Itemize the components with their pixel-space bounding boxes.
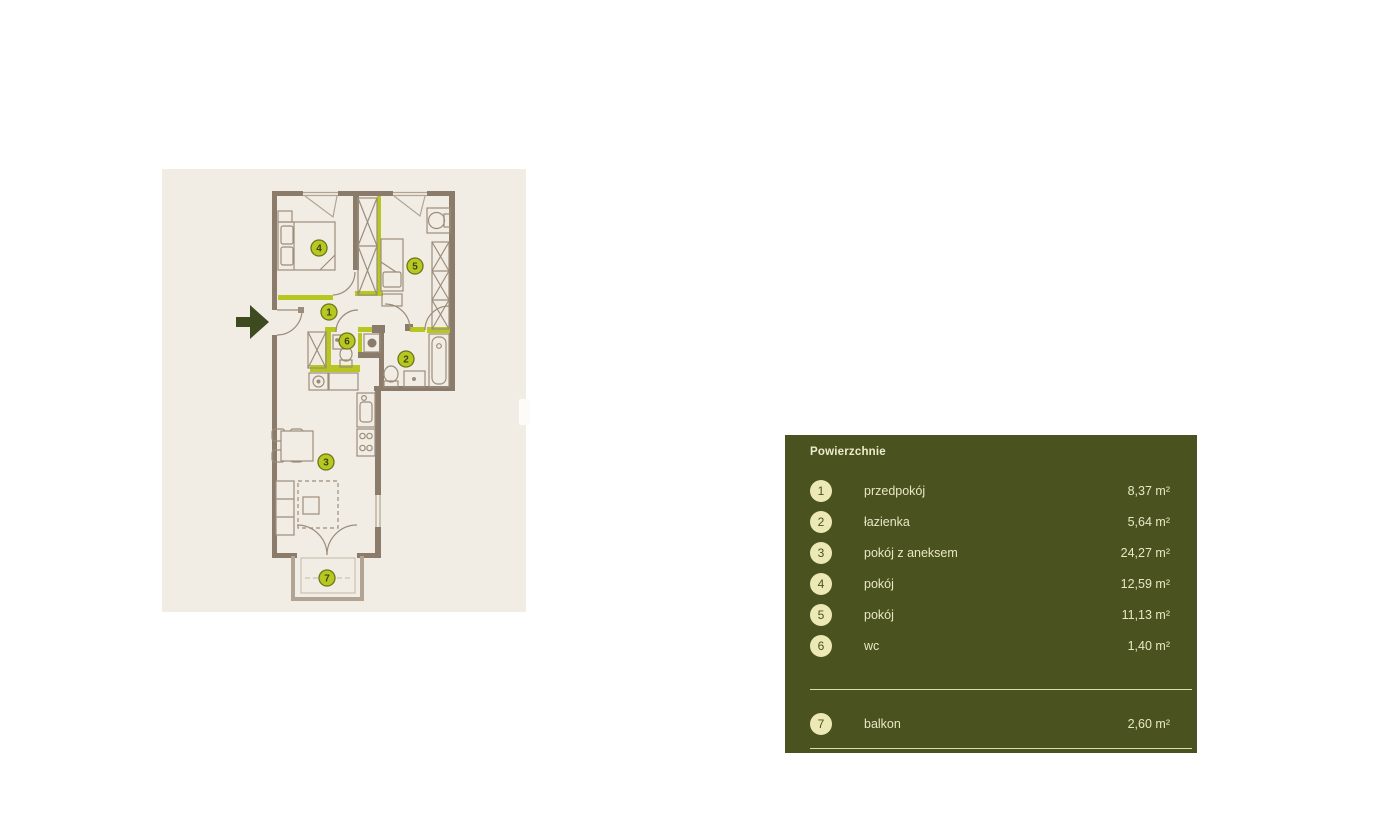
floorplan-svg: 1234567 [162,169,526,612]
room-label: pokój [864,577,894,591]
legend-row-pokoj-z-aneksem: 3 pokój z aneksem 24,27 m² [810,537,1170,568]
room-marker: 1 [321,304,337,320]
room-label: pokój z aneksem [864,546,958,560]
divider [810,748,1192,749]
room-list: 1 przedpokój 8,37 m² 2 łazienka 5,64 m² … [810,475,1170,661]
divider [810,689,1192,690]
room-label: łazienka [864,515,910,529]
room-marker: 3 [318,454,334,470]
legend-row-balkon: 7 balkon 2,60 m² [810,708,1170,739]
room-area: 11,13 m² [1122,608,1170,622]
room-marker-number: 2 [403,355,409,366]
room-area: 24,27 m² [1121,546,1170,560]
room-area: 2,60 m² [1128,717,1170,731]
room-marker-number: 3 [323,458,329,469]
room-number-badge: 7 [810,713,832,735]
room-marker-number: 5 [412,262,418,273]
room-label: balkon [864,717,901,731]
room-marker: 2 [398,351,414,367]
room-number-badge: 5 [810,604,832,626]
room-marker-number: 7 [324,574,330,585]
room-number-badge: 1 [810,480,832,502]
room-number-badge: 3 [810,542,832,564]
room-number-badge: 4 [810,573,832,595]
legend-row-pokoj-5: 5 pokój 11,13 m² [810,599,1170,630]
room-area: 12,59 m² [1121,577,1170,591]
legend-row-lazienka: 2 łazienka 5,64 m² [810,506,1170,537]
room-marker-number: 1 [326,308,332,319]
room-label: wc [864,639,879,653]
panel-title: Powierzchnie [810,446,886,458]
furniture [272,198,450,535]
room-area: 8,37 m² [1128,484,1170,498]
room-label: przedpokój [864,484,925,498]
room-label: pokój [864,608,894,622]
room-marker-number: 4 [316,244,322,255]
room-marker: 6 [339,333,355,349]
room-marker-number: 6 [344,337,350,348]
floorplan: 1234567 [162,169,526,612]
room-marker: 7 [319,570,335,586]
room-number-badge: 2 [810,511,832,533]
room-area: 1,40 m² [1128,639,1170,653]
room-marker: 5 [407,258,423,274]
room-number-badge: 6 [810,635,832,657]
entrance-arrow-icon [236,305,269,339]
room-area: 5,64 m² [1128,515,1170,529]
legend-row-przedpokoj: 1 przedpokój 8,37 m² [810,475,1170,506]
areas-panel: Powierzchnie 1 przedpokój 8,37 m² 2 łazi… [785,435,1197,753]
legend-row-pokoj-4: 4 pokój 12,59 m² [810,568,1170,599]
legend-row-wc: 6 wc 1,40 m² [810,630,1170,661]
edge-notch [519,399,530,425]
room-marker: 4 [311,240,327,256]
